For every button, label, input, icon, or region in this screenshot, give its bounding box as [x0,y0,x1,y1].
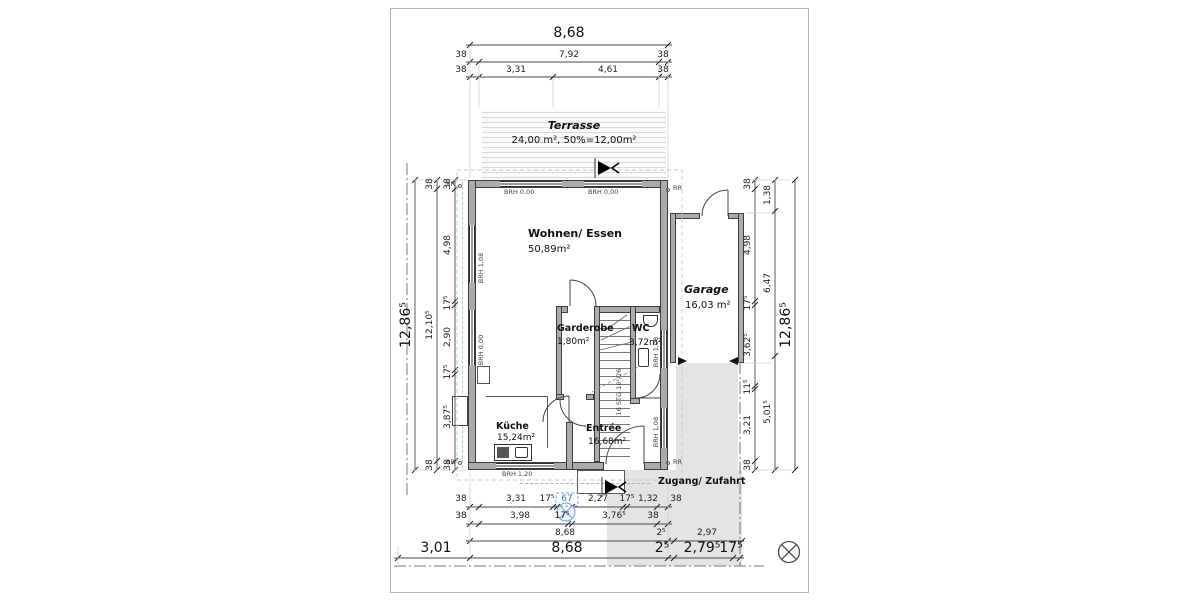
room-label-kueche: Küche [496,422,529,432]
room-label-terrasse: Terrasse [548,120,600,132]
dim-left-total: 12,86⁵ [399,302,414,348]
dim-right-o1: 6,47 [764,273,774,293]
wall-wc-bottom [630,398,640,404]
dim-left-i6: 38 [444,459,454,470]
dim-top-r2-2: 38 [657,51,668,61]
dim-top-r3-1: 3,31 [506,66,526,76]
room-area-terrasse: 24,00 m², 50%=12,00m² [512,135,637,146]
staircase-label: 16 STG 18¹/26 [616,369,623,416]
dim-bot-r1-2: 17⁵ [539,495,554,505]
dim-bot-r4-4: 17⁵ [719,541,742,556]
dim-top-total: 8,68 [553,26,584,41]
dim-bot-r1-1: 3,31 [506,495,526,505]
entrance-step [577,470,625,494]
dim-bot-r1-4: 2,27 [588,495,608,505]
wall-garderobe-bottom-b [586,394,594,400]
dim-bot-r1-3-selected: 67 [561,495,572,505]
downpipe-label-ne: RR [673,185,682,192]
dim-right-total: 12,86⁵ [779,302,794,348]
wall-garderobe-bottom-a [556,394,564,400]
room-label-wc: WC [632,324,649,334]
dim-bot-r4-1: 8,68 [551,541,582,556]
dim-top-r2-1: 7,92 [559,51,579,61]
dim-left-i5: 3,87⁵ [444,405,454,429]
room-area-garage: 16,03 m² [685,300,731,311]
dim-bot-r1-7: 38 [670,495,681,505]
dim-bot-r2-1: 3,98 [510,512,530,522]
downpipe-label-se: RR [673,459,682,466]
room-area-kueche: 15,24m² [497,434,535,444]
dim-right-i5: 3,21 [744,415,754,435]
wall-garderobe-left [556,306,562,400]
wall-garderobe-top-b [594,306,660,313]
dim-bot-r3-2: 2,97 [697,529,717,539]
dim-left-o2: 38 [426,459,436,470]
dim-right-i2: 17⁵ [744,295,754,310]
window-kitchen-south [496,463,554,469]
dim-right-o2: 5,01⁵ [764,400,774,424]
dim-bot-r4-3: 2,79⁵ [684,541,721,556]
room-area-entree: 16,68m² [588,438,626,448]
room-label-entree: Entrée [586,424,621,434]
dim-right-i0: 38 [744,178,754,189]
dim-bot-r4-2: 2⁵ [655,541,670,556]
kitchen-sink-basin [515,447,528,458]
dim-bot-r4-0: 3,01 [420,541,451,556]
window-wc-east [661,330,667,368]
sill-label-entree: BRH 1,08 [653,417,660,447]
wall-entree-kueche [566,422,573,470]
window-west-1 [469,225,475,283]
dim-left-i1: 4,98 [444,235,454,255]
room-area-wohnen-essen: 50,89m² [528,244,570,255]
sill-label-west-1: BRH 1,08 [478,253,485,283]
window-entree-east [661,408,667,448]
dim-bot-r2-0: 38 [455,512,466,522]
sill-label-kitchen: BRH 1,20 [502,471,532,478]
wall-garage-left [670,213,676,363]
window-west-2 [469,310,475,365]
dim-bot-r1-6: 1,32 [638,495,658,505]
sill-label-wc: BRH 1,08 [653,337,660,367]
sill-label-north-1: BRH 0,00 [504,189,534,196]
dim-left-i0: 38 [444,178,454,189]
room-area-garderobe: 1,80m² [557,338,589,348]
dim-bot-r2-3: 3,76⁵ [602,512,626,522]
room-label-garderobe: Garderobe [557,324,614,334]
sill-label-north-2: BRH 0,00 [588,189,618,196]
driveway-area-garage [676,363,738,470]
dim-left-o0: 38 [426,178,436,189]
dim-right-o0: 1,38 [764,185,774,205]
dim-top-r3-2: 4,61 [598,66,618,76]
dim-top-r3-0: 38 [455,66,466,76]
dim-right-i1: 4,98 [744,235,754,255]
dim-left-o1: 12,10⁵ [426,310,436,339]
dim-left-i4: 17⁵ [444,364,454,379]
window-north-1 [500,181,562,187]
floor-plan-canvas: 8,68 38 7,92 38 38 3,31 4,61 38 Terrasse… [0,0,1200,600]
sill-label-west-2: BRH 0,00 [478,335,485,365]
dim-right-i4: 11⁵ [744,379,754,394]
room-label-garage: Garage [684,284,729,296]
dim-bot-r3-1: 2⁵ [656,529,665,539]
chimney-block [452,396,468,426]
dim-left-i3: 2,90 [444,327,454,347]
dim-right-i6: 38 [744,459,754,470]
label-zugang-zufahrt: Zugang/ Zufahrt [658,477,745,487]
dim-bot-r1-5: 17⁵ [619,495,634,505]
kitchen-stove [497,447,509,458]
wall-stairs-right [630,306,636,404]
room-label-wohnen-essen: Wohnen/ Essen [528,228,622,240]
dim-bot-r2-4: 38 [647,512,658,522]
dim-bot-r1-0: 38 [455,495,466,505]
dim-left-i2: 17⁵ [444,295,454,310]
window-north-2 [584,181,642,187]
dim-bot-r3-0: 8,68 [555,529,575,539]
selection-dashed-line [520,483,650,484]
dim-top-r3-3: 38 [657,66,668,76]
wc-toilet [638,348,649,367]
dim-top-r2-0: 38 [455,51,466,61]
left-wall-appliance [477,366,490,384]
dim-right-i3: 3,62⁵ [744,333,754,357]
dim-bot-r2-2: 17⁵ [554,512,569,522]
